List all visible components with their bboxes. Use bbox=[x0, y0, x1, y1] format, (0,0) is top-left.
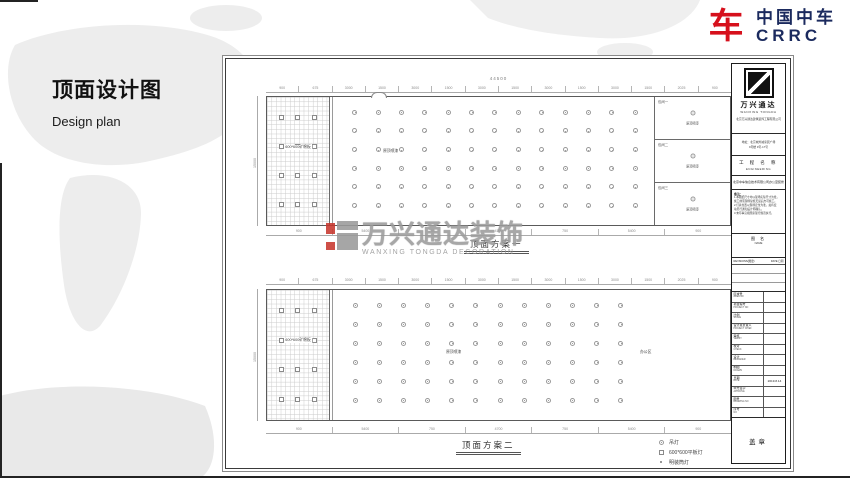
pendant-light-icon bbox=[690, 196, 695, 201]
page-title: 顶面设计图 bbox=[52, 74, 162, 104]
legend-label: 吊灯 bbox=[669, 439, 679, 446]
titleblock-row: 审核VERIFY bbox=[732, 334, 785, 345]
pendant-light-icon bbox=[586, 184, 591, 189]
row-label-en: APPROVE bbox=[734, 391, 762, 394]
crrc-logo: 车 中国中车 CRRC bbox=[705, 8, 836, 46]
page-subtitle: Design plan bbox=[52, 114, 162, 129]
titleblock-row: 比例SCALE bbox=[732, 313, 785, 324]
pendant-light-icon bbox=[449, 303, 454, 308]
pendant-light-icon bbox=[594, 341, 599, 346]
pendant-light-icon bbox=[353, 379, 358, 384]
titleblock-row: 制图DRAWN bbox=[732, 366, 785, 377]
pendant-light-icon bbox=[563, 110, 568, 115]
project-name-header: 工 程 名 称 ENGINEERING bbox=[732, 156, 785, 176]
panel-light-icon bbox=[312, 202, 317, 207]
panel-light-icon bbox=[312, 367, 317, 372]
pendant-light-icon bbox=[399, 128, 404, 133]
pendant-light-icon bbox=[618, 303, 623, 308]
titleblock-row: 图号DRAWING NO bbox=[732, 397, 785, 408]
pendant-light-icon bbox=[563, 147, 568, 152]
decoration-watermark: 万兴通达装饰 WANXING TONGDA DECORATION bbox=[326, 221, 524, 256]
pendant-light-icon bbox=[633, 147, 638, 152]
crrc-name-en: CRRC bbox=[756, 27, 836, 45]
pendant-light-icon bbox=[473, 341, 478, 346]
dimension-value: 1500 bbox=[432, 86, 465, 92]
pendant-light-icon bbox=[446, 110, 451, 115]
project-label-cn: 工 程 名 称 bbox=[732, 160, 785, 166]
pendant-light-icon bbox=[690, 110, 695, 115]
text-line: 施工前须现场复核无误后方可施工。 bbox=[734, 200, 783, 204]
legend-label: 600*600平板灯 bbox=[669, 449, 703, 456]
stamp-cell: 盖章 bbox=[732, 417, 785, 463]
pendant-light-icon bbox=[377, 322, 382, 327]
dimension-value: 3000 bbox=[333, 278, 366, 284]
revisions-date-label: DATE 日期 bbox=[771, 259, 784, 263]
pendant-light-icon bbox=[353, 341, 358, 346]
text-line: 1.本图纸尺寸均以现场实际尺寸为准， bbox=[734, 196, 783, 200]
row-value bbox=[764, 397, 785, 407]
pendant-light-icon bbox=[498, 398, 503, 403]
pendant-light-icon bbox=[522, 379, 527, 384]
dimension-value: 900 bbox=[266, 229, 333, 235]
pendant-light-icon bbox=[352, 166, 357, 171]
pendant-light-icon bbox=[449, 379, 454, 384]
pendant-light-icon bbox=[563, 166, 568, 171]
company-name-en: WANXING TONGDA bbox=[732, 110, 785, 114]
revision-row-empty bbox=[732, 274, 785, 283]
pendant-light-icon bbox=[586, 128, 591, 133]
panel-light-icon bbox=[312, 338, 317, 343]
dimension-value: 3000 bbox=[532, 278, 565, 284]
row-label-en: DRAWING NO bbox=[734, 401, 762, 404]
dimension-value: 3000 bbox=[532, 86, 565, 92]
pendant-light-icon bbox=[401, 398, 406, 403]
pendant-light-icon bbox=[539, 110, 544, 115]
pendant-light-icon bbox=[522, 360, 527, 365]
pendant-light-icon bbox=[425, 379, 430, 384]
dimension-value: 15000 bbox=[253, 352, 257, 362]
plan1-grid-label: 600*600矿棉板 bbox=[284, 145, 312, 150]
row-value bbox=[764, 324, 785, 334]
drawing-name-section: 图 名 NAME bbox=[732, 234, 785, 258]
titleblock-row: 日期DATE2019.8.14 bbox=[732, 376, 785, 387]
pendant-light-icon bbox=[492, 184, 497, 189]
pendant-light-icon bbox=[522, 398, 527, 403]
panel-light-icon bbox=[279, 202, 284, 207]
panel-light-icon bbox=[279, 144, 284, 149]
room-name: 包间一 bbox=[658, 99, 668, 104]
dimension-value: 5400 bbox=[599, 427, 666, 433]
dimension-value: 900 bbox=[665, 427, 731, 433]
pendant-light-icon bbox=[563, 184, 568, 189]
watermark-name-cn: 万兴通达装饰 bbox=[362, 221, 524, 247]
pendant-light-icon bbox=[594, 379, 599, 384]
pendant-light-icon bbox=[546, 322, 551, 327]
pendant-light-icon bbox=[618, 398, 623, 403]
dimension-value: 1500 bbox=[432, 278, 465, 284]
revision-row-empty bbox=[732, 283, 785, 292]
panel-light-icon bbox=[312, 115, 317, 120]
pendant-light-icon bbox=[570, 341, 575, 346]
titleblock-company-section: 万兴通达 WANXING TONGDA 北京万兴通达建筑装饰工程有限公司 bbox=[732, 64, 785, 134]
titleblock-row: 设计总负责人PROJECT CHIEF bbox=[732, 324, 785, 335]
plan1-entry-door-arc bbox=[371, 92, 387, 98]
panel-light-icon bbox=[312, 173, 317, 178]
plan1-corridor-wall bbox=[332, 97, 333, 225]
wanxing-watermark-logo-icon bbox=[326, 221, 358, 250]
pendant-light-icon bbox=[376, 110, 381, 115]
pendant-light-icon bbox=[546, 341, 551, 346]
pendant-light-icon bbox=[570, 379, 575, 384]
dimension-value: 900 bbox=[266, 86, 299, 92]
pendant-light-icon bbox=[586, 110, 591, 115]
panel-light-icon bbox=[295, 397, 300, 402]
pendant-light-icon bbox=[377, 360, 382, 365]
pendant-light-icon bbox=[352, 110, 357, 115]
room-ceiling-label: 原顶喷漆 bbox=[686, 121, 699, 126]
panel-light-icon bbox=[295, 115, 300, 120]
pendant-light-icon bbox=[522, 303, 527, 308]
notes-section: 备注： 1.本图纸尺寸均以现场实际尺寸为准， 施工前须现场复核无误后方可施工。2… bbox=[732, 190, 785, 234]
pendant-light-icon bbox=[446, 166, 451, 171]
pendant-light-icon bbox=[473, 303, 478, 308]
dimension-value: 3000 bbox=[466, 278, 499, 284]
plan2-corridor-wall bbox=[332, 290, 333, 420]
titleblock-row: 序号NO bbox=[732, 408, 785, 418]
pendant-light-icon bbox=[516, 147, 521, 152]
row-label-en: CHECK bbox=[734, 349, 762, 352]
titleblock-rows: 区域号AREA NO项目编号PROJECT NO比例SCALE设计总负责人PRO… bbox=[732, 292, 785, 417]
room-name: 包间三 bbox=[658, 185, 668, 190]
pendant-light-icon bbox=[473, 360, 478, 365]
panel-light-icon bbox=[279, 115, 284, 120]
pendant-light-icon bbox=[586, 203, 591, 208]
panel-light-icon bbox=[295, 367, 300, 372]
pendant-light-icon bbox=[473, 322, 478, 327]
dimension-value: 1500 bbox=[499, 86, 532, 92]
pendant-light-icon bbox=[399, 166, 404, 171]
dimension-value: 3000 bbox=[399, 278, 432, 284]
row-value bbox=[764, 334, 785, 344]
pendant-light-icon bbox=[498, 341, 503, 346]
panel-light-icon bbox=[295, 202, 300, 207]
plan2-grid-label: 600*600矿棉板 bbox=[284, 338, 312, 343]
company-name-cn: 万兴通达 bbox=[732, 100, 785, 110]
pendant-light-icon bbox=[516, 128, 521, 133]
pendant-light-icon bbox=[352, 203, 357, 208]
row-value bbox=[764, 408, 785, 418]
pendant-light-icon bbox=[352, 147, 357, 152]
dimension-value: 3000 bbox=[333, 86, 366, 92]
pendant-light-icon bbox=[352, 128, 357, 133]
pendant-light-icon bbox=[449, 322, 454, 327]
pendant-light-icon bbox=[425, 398, 430, 403]
pendant-light-icon bbox=[690, 153, 695, 158]
pendant-light-icon bbox=[377, 303, 382, 308]
dimension-value: 900 bbox=[266, 427, 333, 433]
pendant-light-icon bbox=[539, 184, 544, 189]
pendant-light-icon bbox=[425, 322, 430, 327]
panel-icon bbox=[659, 450, 664, 455]
pendant-light-icon bbox=[492, 147, 497, 152]
pendant-light-icon bbox=[563, 203, 568, 208]
crrc-mark-icon: 车 bbox=[705, 8, 747, 46]
revisions-label: REVISIONS(图更) bbox=[734, 259, 755, 263]
legend-label: 明装筒灯 bbox=[669, 459, 689, 466]
pendant-light-icon bbox=[377, 341, 382, 346]
pendant-light-icon bbox=[399, 203, 404, 208]
row-label-en: NO bbox=[734, 412, 762, 415]
pendant-light-icon bbox=[633, 110, 638, 115]
panel-light-icon bbox=[312, 308, 317, 313]
revision-row-empty bbox=[732, 265, 785, 274]
pendant-light-icon bbox=[401, 341, 406, 346]
dimension-value: 1500 bbox=[632, 278, 665, 284]
plan1-grid-ceiling-zone: 600*600矿棉板 bbox=[267, 97, 330, 225]
pendant-light-icon bbox=[449, 398, 454, 403]
downlight-icon bbox=[660, 461, 662, 463]
revisions-section: REVISIONS(图更) DATE 日期 bbox=[732, 258, 785, 292]
pendant-light-icon bbox=[446, 184, 451, 189]
pendant-light-icon bbox=[422, 147, 427, 152]
plan2-caption: 顶面方案二 bbox=[456, 439, 521, 455]
watermark-name-en: WANXING TONGDA DECORATION bbox=[362, 249, 524, 256]
dimension-value: 3000 bbox=[466, 86, 499, 92]
pendant-light-icon bbox=[586, 166, 591, 171]
plan2-lights-grid bbox=[343, 296, 633, 410]
row-value: 2019.8.14 bbox=[764, 376, 785, 386]
pendant-light-icon bbox=[498, 379, 503, 384]
pendant-light-icon bbox=[594, 303, 599, 308]
pendant-light-icon bbox=[609, 203, 614, 208]
pendant-light-icon bbox=[546, 379, 551, 384]
room: 包间二原顶喷漆 bbox=[655, 140, 730, 183]
plan2-left-dimension: 15000 bbox=[257, 289, 258, 421]
dimension-value: 4700 bbox=[466, 427, 533, 433]
pendant-light-icon bbox=[618, 379, 623, 384]
plan2-bottom-dimensions: 900540075047007505400900 bbox=[266, 427, 731, 434]
slide: 车 中国中车 CRRC 顶面设计图 Design plan 44500 9006… bbox=[0, 0, 850, 478]
pendant-light-icon bbox=[492, 166, 497, 171]
row-value bbox=[764, 313, 785, 323]
room-ceiling-label: 原顶喷漆 bbox=[686, 164, 699, 169]
project-name: 北京中车信息技术有限公司办公室装修 bbox=[732, 176, 785, 190]
plan2-office-label: 办公区 bbox=[639, 350, 652, 355]
pendant-light-icon bbox=[618, 322, 623, 327]
company-address: 地址：北京城外诚家居广场9号楼 9号-17号 bbox=[732, 134, 785, 156]
plan1-private-rooms: 包间一原顶喷漆包间二原顶喷漆包间三原顶喷漆 bbox=[654, 97, 730, 225]
dimension-value: 3000 bbox=[399, 86, 432, 92]
pendant-light-icon bbox=[522, 341, 527, 346]
pendant-light-icon bbox=[618, 360, 623, 365]
dimension-value: 1500 bbox=[566, 278, 599, 284]
plan2-open-ceiling-label: 原顶喷漆 bbox=[445, 350, 462, 355]
text-line: 地址：北京城外诚家居广场 bbox=[732, 140, 785, 144]
row-value bbox=[764, 345, 785, 355]
row-label-en: PROJECT CHIEF bbox=[734, 328, 762, 331]
pendant-light-icon bbox=[399, 184, 404, 189]
crrc-wordmark: 中国中车 CRRC bbox=[756, 9, 836, 45]
pendant-light-icon bbox=[399, 110, 404, 115]
row-label-en: DATE bbox=[734, 380, 762, 383]
pendant-light-icon bbox=[376, 147, 381, 152]
dimension-value: 15000 bbox=[253, 158, 257, 168]
plan1-lights-grid bbox=[343, 103, 647, 215]
dimension-value: 3000 bbox=[599, 278, 632, 284]
text-line: 3.未尽事宜按国家现行规范执行。 bbox=[734, 212, 783, 216]
row-value bbox=[764, 292, 785, 302]
pendant-light-icon bbox=[469, 110, 474, 115]
dimension-value: 2025 bbox=[665, 86, 698, 92]
sheet-frame: 44500 9006753000150030001500300015003000… bbox=[225, 58, 791, 469]
dimension-value: 750 bbox=[399, 427, 466, 433]
page-title-block: 顶面设计图 Design plan bbox=[52, 74, 162, 129]
pendant-light-icon bbox=[546, 360, 551, 365]
pendant-light-icon bbox=[377, 379, 382, 384]
dimension-value: 900 bbox=[699, 278, 731, 284]
pendant-light-icon bbox=[376, 203, 381, 208]
crrc-name-cn: 中国中车 bbox=[756, 9, 836, 27]
notes-lines: 1.本图纸尺寸均以现场实际尺寸为准， 施工前须现场复核无误后方可施工。2.灯具位… bbox=[734, 196, 783, 216]
pendant-light-icon bbox=[401, 379, 406, 384]
pendant-light-icon bbox=[633, 166, 638, 171]
wanxing-tongda-logo-icon bbox=[744, 68, 774, 98]
plan1-open-ceiling-label: 原顶喷漆 bbox=[382, 149, 399, 154]
drawing-name-label-en: NAME bbox=[732, 242, 785, 245]
pendant-light-icon bbox=[401, 360, 406, 365]
row-label-en: DESIGNER bbox=[734, 359, 762, 362]
pendant-light-icon bbox=[425, 360, 430, 365]
pendant-light-icon bbox=[446, 128, 451, 133]
pendant-light-icon bbox=[539, 203, 544, 208]
panel-light-icon bbox=[279, 397, 284, 402]
pendant-light-icon bbox=[570, 322, 575, 327]
row-label-en: SCALE bbox=[734, 317, 762, 320]
project-label-en: ENGINEERING bbox=[732, 167, 785, 171]
pendant-light-icon bbox=[594, 322, 599, 327]
pendant-light-icon bbox=[376, 128, 381, 133]
pendant-light-icon bbox=[609, 147, 614, 152]
row-label-en: AREA NO bbox=[734, 296, 762, 299]
pendant-light-icon bbox=[469, 184, 474, 189]
pendant-light-icon bbox=[425, 303, 430, 308]
titleblock-row: 校对CHECK bbox=[732, 345, 785, 356]
pendant-light-icon bbox=[539, 147, 544, 152]
pendant-light-icon bbox=[353, 398, 358, 403]
pendant-light-icon bbox=[498, 303, 503, 308]
room: 包间一原顶喷漆 bbox=[655, 97, 730, 140]
panel-light-icon bbox=[279, 173, 284, 178]
pendant-light-icon bbox=[546, 398, 551, 403]
pendant-light-icon bbox=[422, 128, 427, 133]
slide-left-rule bbox=[0, 163, 2, 478]
pendant-light-icon bbox=[539, 166, 544, 171]
dimension-value: 1500 bbox=[366, 278, 399, 284]
dimension-value: 2025 bbox=[665, 278, 698, 284]
dimension-value: 1500 bbox=[499, 278, 532, 284]
row-value bbox=[764, 366, 785, 376]
row-label-en: VERIFY bbox=[734, 338, 762, 341]
pendant-light-icon bbox=[492, 110, 497, 115]
pendant-light-icon bbox=[522, 322, 527, 327]
pendant-light-icon bbox=[586, 147, 591, 152]
dimension-value: 5400 bbox=[333, 427, 400, 433]
titleblock-row: 甲方签字APPROVE bbox=[732, 387, 785, 398]
dimension-value: 900 bbox=[266, 278, 299, 284]
pendant-light-icon bbox=[492, 128, 497, 133]
pendant-light-icon bbox=[422, 166, 427, 171]
pendant-light-icon bbox=[422, 203, 427, 208]
dimension-value: 750 bbox=[532, 427, 599, 433]
pendant-light-icon bbox=[609, 166, 614, 171]
room-ceiling-label: 原顶喷漆 bbox=[686, 207, 699, 212]
pendant-light-icon bbox=[570, 303, 575, 308]
row-value bbox=[764, 355, 785, 365]
pendant-light-icon bbox=[516, 110, 521, 115]
legend-item: 600*600平板灯 bbox=[658, 448, 703, 456]
pendant-light-icon bbox=[633, 128, 638, 133]
pendant-light-icon bbox=[594, 360, 599, 365]
pendant-light-icon bbox=[353, 303, 358, 308]
pendant-light-icon bbox=[377, 398, 382, 403]
pendant-light-icon bbox=[609, 184, 614, 189]
pendant-light-icon bbox=[539, 128, 544, 133]
row-value bbox=[764, 303, 785, 313]
pendant-light-icon bbox=[563, 128, 568, 133]
dimension-value: 5400 bbox=[599, 229, 666, 235]
pendant-light-icon bbox=[446, 203, 451, 208]
pendant-light-icon bbox=[570, 398, 575, 403]
titleblock-row: 区域号AREA NO bbox=[732, 292, 785, 303]
plan2-grid-ceiling-zone: 600*600矿棉板 bbox=[267, 290, 330, 420]
lighting-legend: 吊灯600*600平板灯明装筒灯 bbox=[658, 438, 703, 466]
dimension-value: 900 bbox=[665, 229, 731, 235]
pendant-light-icon bbox=[633, 184, 638, 189]
pendant-light-icon bbox=[498, 360, 503, 365]
pendant-light-icon bbox=[469, 203, 474, 208]
pendant-light-icon bbox=[399, 147, 404, 152]
pendant-light-icon bbox=[469, 166, 474, 171]
dimension-value: 900 bbox=[699, 86, 731, 92]
plan1-left-dimension: 15000 bbox=[257, 96, 258, 226]
pendant-light-icon bbox=[376, 166, 381, 171]
panel-light-icon bbox=[279, 308, 284, 313]
pendant-light-icon bbox=[422, 110, 427, 115]
pendant-light-icon bbox=[469, 128, 474, 133]
pendant-light-icon bbox=[353, 360, 358, 365]
plan1-total-dimension: 44500 bbox=[266, 76, 731, 81]
plan2-body: 600*600矿棉板 原顶喷漆 办公区 bbox=[266, 289, 731, 421]
pendant-light-icon bbox=[633, 203, 638, 208]
dimension-value: 675 bbox=[299, 278, 332, 284]
pendant-light-icon bbox=[618, 341, 623, 346]
plan2-panel-lights bbox=[273, 296, 323, 414]
pendant-light-icon bbox=[516, 166, 521, 171]
pendant-icon bbox=[659, 440, 664, 445]
panel-light-icon bbox=[279, 338, 284, 343]
row-label-en: DRAWN bbox=[734, 370, 762, 373]
panel-light-icon bbox=[312, 144, 317, 149]
panel-light-icon bbox=[295, 308, 300, 313]
pendant-light-icon bbox=[401, 322, 406, 327]
pendant-light-icon bbox=[473, 379, 478, 384]
row-label-en: PROJECT NO bbox=[734, 307, 762, 310]
plan1-top-dimensions: 9006753000150030001500300015003000150030… bbox=[266, 86, 731, 93]
pendant-light-icon bbox=[352, 184, 357, 189]
titleblock-row: 项目编号PROJECT NO bbox=[732, 303, 785, 314]
room: 包间三原顶喷漆 bbox=[655, 183, 730, 225]
text-line: 9号楼 9号-17号 bbox=[732, 145, 785, 149]
